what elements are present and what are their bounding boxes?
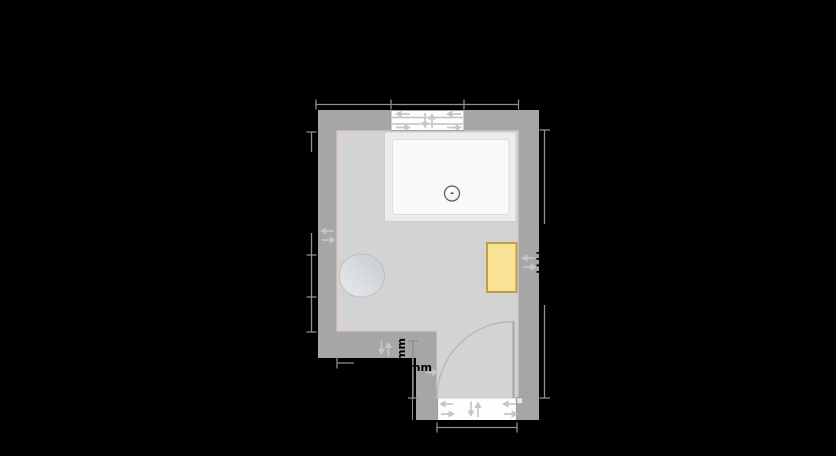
planner-canvas[interactable]: mm mm (0, 0, 836, 456)
clipped-dimension-label (537, 252, 541, 254)
clipped-dimension-label (537, 258, 541, 260)
shower-drain-slot (451, 192, 454, 194)
toilet[interactable] (340, 254, 385, 297)
clipped-dimension-label (537, 271, 541, 273)
shower-tray-basin (393, 140, 510, 215)
clipped-dimension-label (537, 265, 541, 267)
shower-tray[interactable] (385, 132, 517, 222)
dimension-unit-label-rotated: mm (395, 338, 408, 361)
door-hinge (517, 398, 524, 405)
radiator[interactable] (487, 243, 517, 292)
